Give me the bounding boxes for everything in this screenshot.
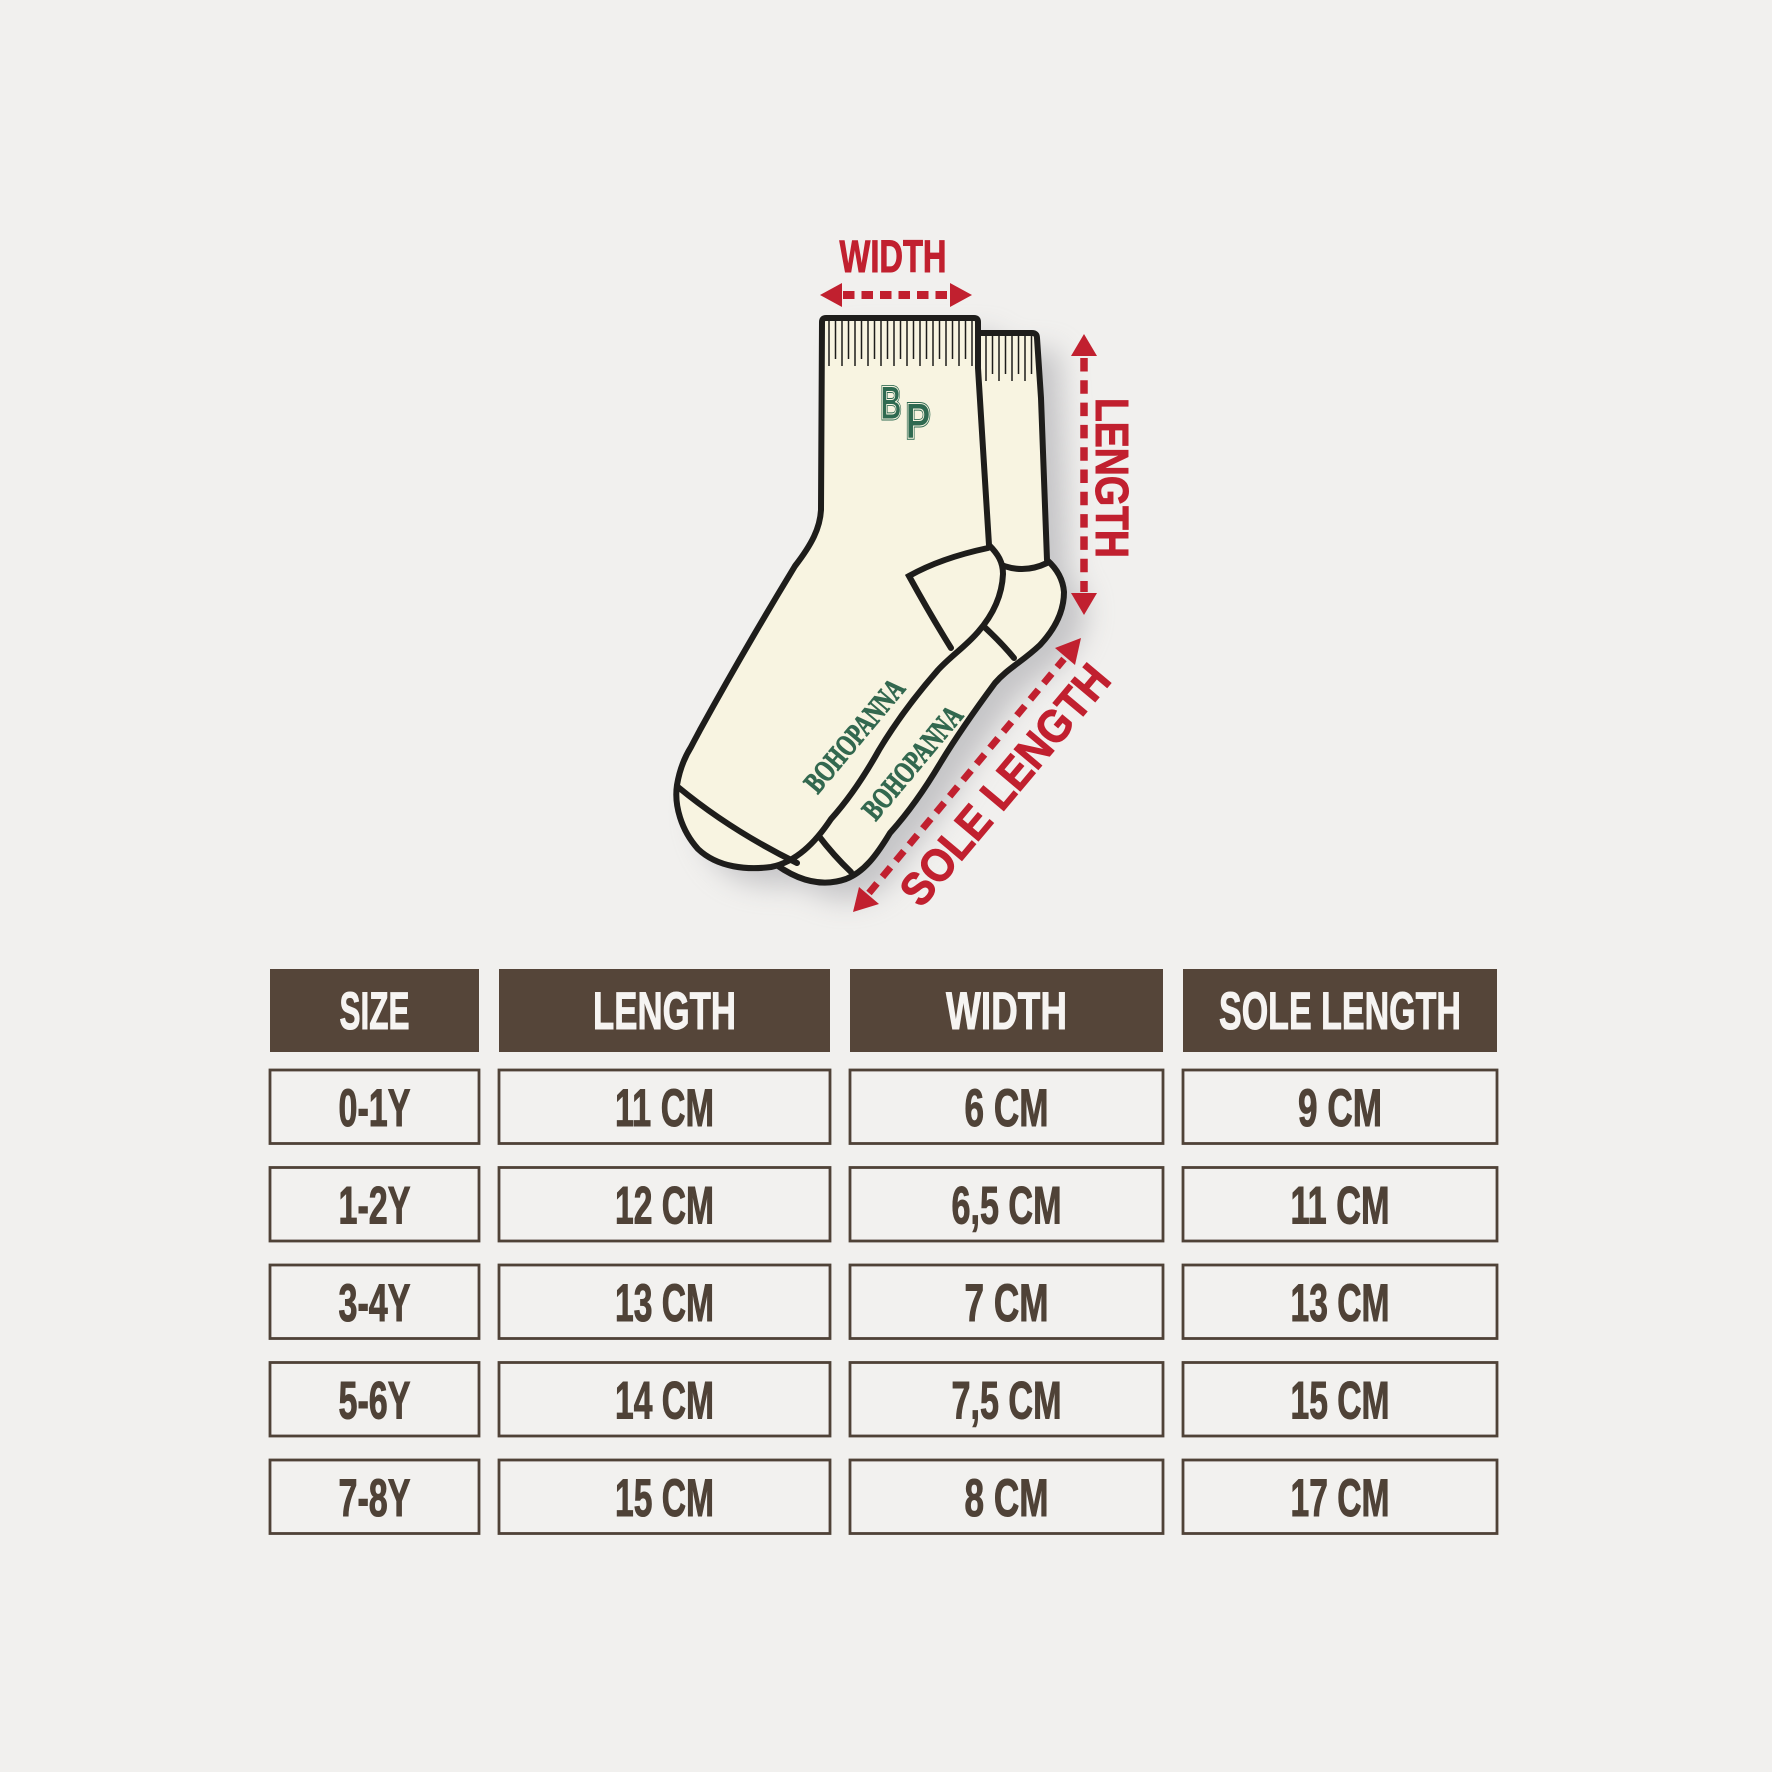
svg-text:13 CM: 13 CM — [615, 1274, 714, 1333]
svg-text:12 CM: 12 CM — [615, 1177, 714, 1236]
svg-text:7-8Y: 7-8Y — [339, 1469, 411, 1528]
svg-text:8 CM: 8 CM — [965, 1469, 1049, 1528]
svg-text:7,5 CM: 7,5 CM — [952, 1372, 1062, 1431]
svg-text:15 CM: 15 CM — [615, 1469, 714, 1528]
svg-text:WIDTH: WIDTH — [840, 231, 947, 282]
svg-text:11 CM: 11 CM — [1291, 1177, 1390, 1236]
svg-text:WIDTH: WIDTH — [946, 982, 1067, 1041]
svg-text:6,5 CM: 6,5 CM — [952, 1177, 1062, 1236]
svg-text:0-1Y: 0-1Y — [339, 1079, 411, 1138]
svg-text:7 CM: 7 CM — [965, 1274, 1049, 1333]
svg-text:SIZE: SIZE — [340, 982, 410, 1041]
svg-text:LENGTH: LENGTH — [593, 982, 736, 1041]
svg-text:14 CM: 14 CM — [615, 1372, 714, 1431]
svg-text:11 CM: 11 CM — [615, 1079, 714, 1138]
svg-text:B: B — [881, 376, 902, 429]
svg-text:13 CM: 13 CM — [1291, 1274, 1390, 1333]
svg-text:3-4Y: 3-4Y — [339, 1274, 411, 1333]
svg-text:9 CM: 9 CM — [1298, 1079, 1382, 1138]
svg-text:6 CM: 6 CM — [965, 1079, 1049, 1138]
svg-text:LENGTH: LENGTH — [1086, 398, 1138, 558]
svg-text:15 CM: 15 CM — [1291, 1372, 1390, 1431]
svg-text:5-6Y: 5-6Y — [339, 1372, 411, 1431]
svg-text:1-2Y: 1-2Y — [339, 1177, 411, 1236]
svg-text:17 CM: 17 CM — [1291, 1469, 1390, 1528]
svg-text:SOLE LENGTH: SOLE LENGTH — [1219, 982, 1461, 1041]
svg-text:P: P — [906, 393, 931, 449]
